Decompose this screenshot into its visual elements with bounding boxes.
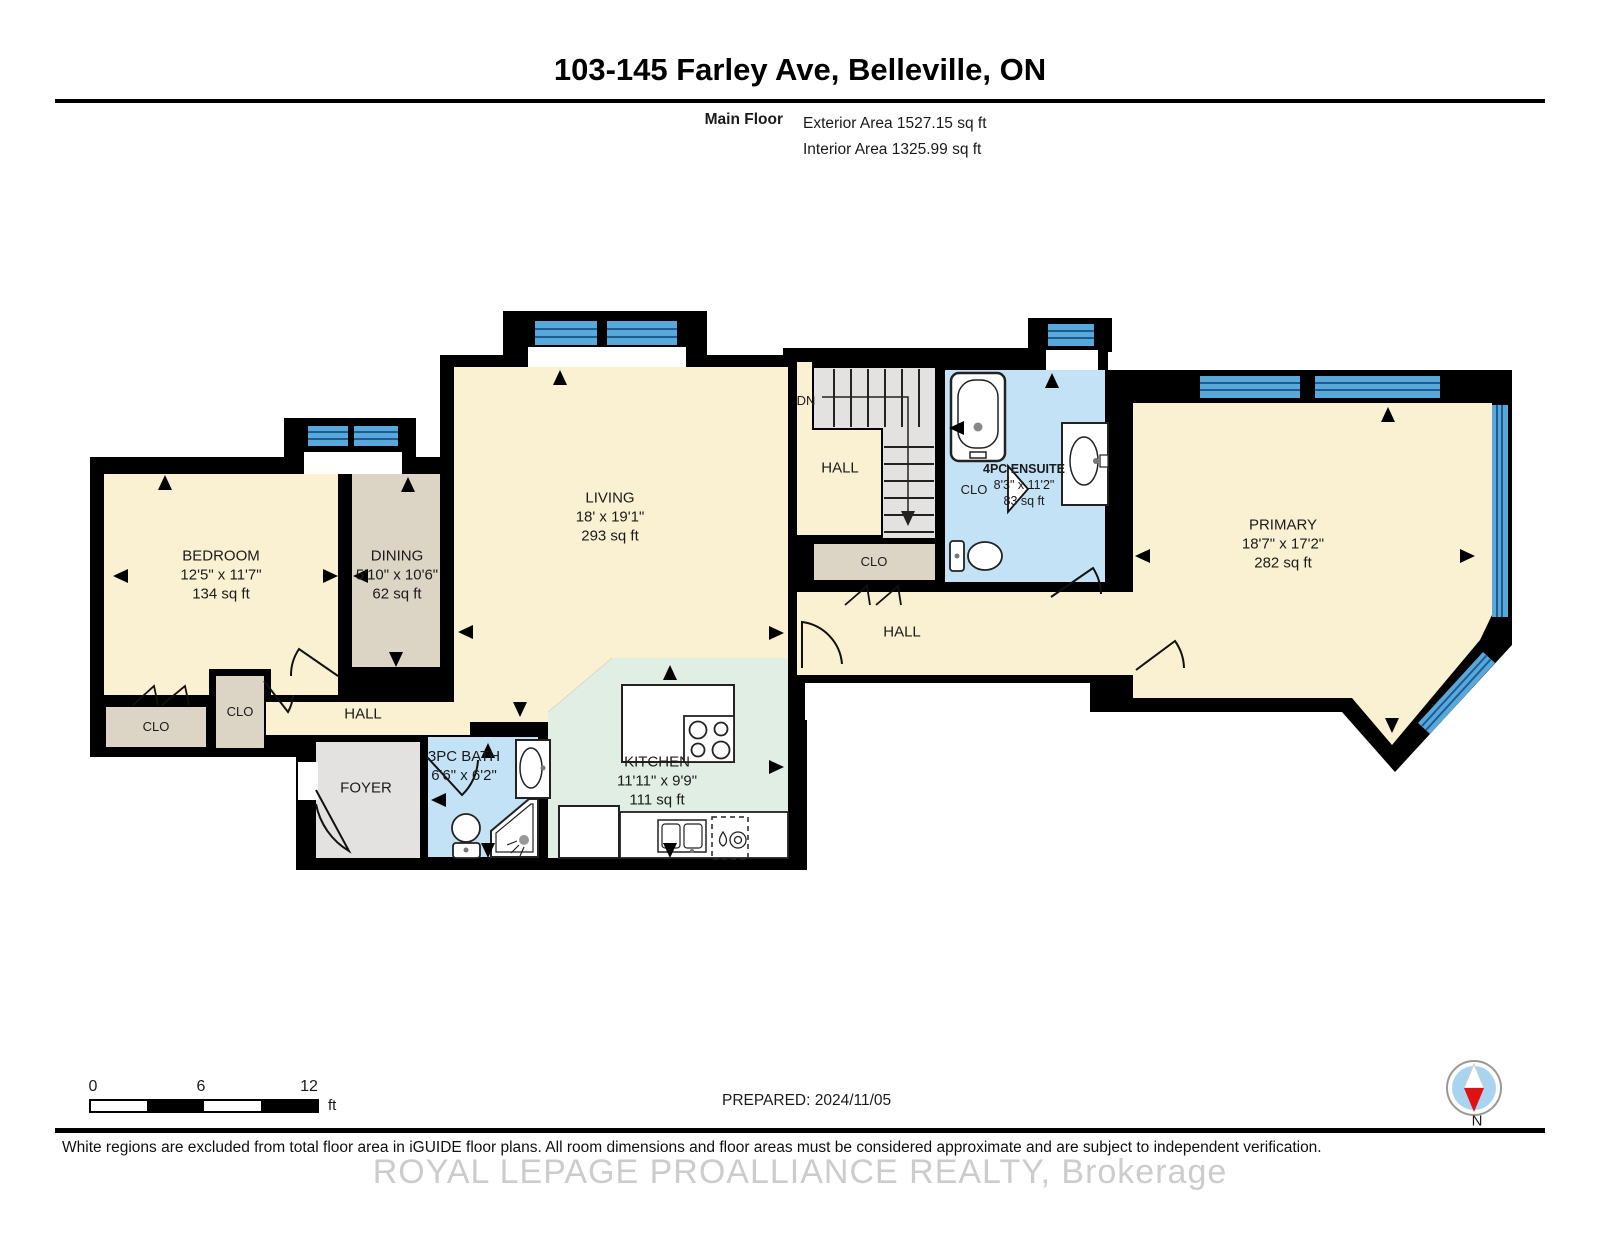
ensuite-sink-icon	[1062, 423, 1108, 505]
bath-toilet-icon	[452, 814, 480, 858]
room-label-hall-upper: HALL	[821, 459, 859, 478]
interior-area: Interior Area 1325.99 sq ft	[803, 137, 987, 163]
floor-label: Main Floor	[563, 111, 783, 129]
bathtub-icon	[951, 373, 1005, 461]
scale-tick-6: 6	[197, 1078, 206, 1096]
room-label-living: LIVING18' x 19'1"293 sq ft	[576, 489, 645, 546]
room-label-clo1: CLO	[143, 719, 170, 735]
room-label-primary: PRIMARY18'7" x 17'2"282 sq ft	[1242, 516, 1324, 573]
floor-plan-drawing	[0, 0, 1600, 1237]
area-summary: Exterior Area 1527.15 sq ft Interior Are…	[803, 111, 987, 163]
living-window-sill	[528, 347, 686, 367]
prepared-date: PREPARED: 2024/11/05	[722, 1092, 891, 1110]
room-label-ensuite: 4PC ENSUITE8'3" x 11'2"83 sq ft	[983, 461, 1065, 509]
room-hall-right-floor	[797, 592, 1133, 675]
entry-opening	[298, 762, 318, 800]
room-label-bath-3pc: 3PC BATH6'6" x 6'2"	[428, 747, 500, 785]
room-label-clo-stairs: CLO	[861, 554, 888, 570]
kitchen-sink-icon	[658, 820, 706, 853]
ensuite-window-sill	[1046, 350, 1098, 370]
kitchen-island-icon	[622, 685, 734, 762]
kitchen-counter-left	[559, 806, 619, 858]
room-label-kitchen: KITCHEN11'11" x 9'9"111 sq ft	[617, 753, 697, 810]
scale-bar	[90, 1100, 318, 1112]
ensuite-toilet-icon	[950, 541, 1002, 571]
scale-unit: ft	[328, 1097, 336, 1114]
room-foyer-floor	[316, 742, 420, 858]
scale-tick-0: 0	[89, 1078, 98, 1096]
room-label-clo-ensuite: CLO	[961, 482, 988, 498]
page-title: 103-145 Farley Ave, Belleville, ON	[0, 52, 1600, 88]
bath-sink-icon	[516, 740, 550, 798]
exterior-area: Exterior Area 1527.15 sq ft	[803, 111, 987, 137]
room-label-hall-left: HALL	[344, 705, 382, 724]
stairs-upper-treads	[814, 368, 935, 428]
room-label-foyer: FOYER	[340, 779, 392, 798]
floor-plan-page: 103-145 Farley Ave, Belleville, ON Main …	[0, 0, 1600, 1237]
header-rule	[55, 99, 1545, 103]
bedroom-window-sill	[304, 452, 402, 474]
footer-rule	[55, 1128, 1545, 1133]
room-label-clo2: CLO	[227, 704, 254, 720]
room-label-dining: DINING5'10" x 10'6"62 sq ft	[356, 547, 438, 604]
scale-tick-12: 12	[300, 1078, 318, 1096]
room-label-hall-right: HALL	[883, 623, 921, 642]
compass-north-label: N	[1472, 1113, 1483, 1130]
stairs-dn-label: DN	[797, 393, 816, 409]
compass-icon	[1447, 1061, 1501, 1115]
brokerage-watermark: ROYAL LEPAGE PROALLIANCE REALTY, Brokera…	[0, 1153, 1600, 1192]
room-label-bedroom: BEDROOM12'5" x 11'7"134 sq ft	[180, 547, 261, 604]
